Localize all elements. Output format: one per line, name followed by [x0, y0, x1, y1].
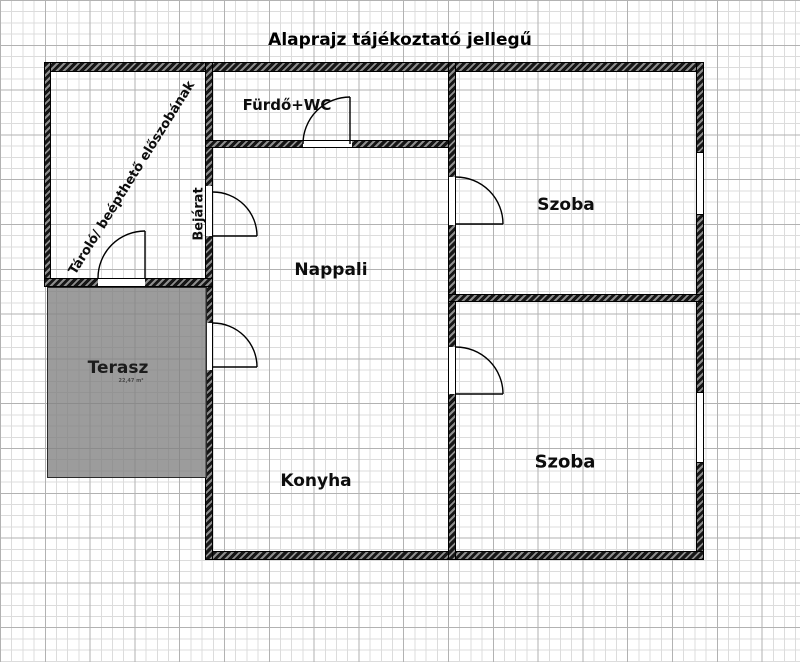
- wall-top: [44, 62, 704, 72]
- wall-middle-vertical: [448, 62, 456, 560]
- floor-plan-canvas: Alaprajz tájékoztató jellegű: [0, 0, 800, 662]
- wall-right: [696, 62, 704, 560]
- plan-title: Alaprajz tájékoztató jellegű: [268, 30, 532, 50]
- window-room-bottom-icon: [696, 392, 704, 463]
- door-arc-room-top-icon: [456, 177, 503, 224]
- terrace-area-value: 22,47 m²: [119, 378, 144, 384]
- door-opening-storage: [98, 278, 145, 287]
- door-opening-bathroom: [303, 140, 352, 148]
- door-opening-room-top: [448, 177, 456, 225]
- door-arc-storage-icon: [98, 231, 145, 278]
- door-arc-entrance-icon: [213, 192, 257, 236]
- room-label-room-top: Szoba: [537, 195, 594, 215]
- room-label-room-bottom: Szoba: [535, 452, 596, 473]
- room-label-kitchen: Konyha: [280, 471, 351, 491]
- wall-storage-left: [44, 62, 51, 287]
- room-label-storage: Tároló/ beépthető előszobának: [66, 78, 198, 277]
- door-opening-room-bottom: [448, 347, 456, 394]
- door-arc-room-bottom-icon: [456, 347, 503, 394]
- room-label-bathroom: Fürdő+WC: [243, 96, 332, 114]
- room-label-entrance: Bejárat: [192, 187, 207, 240]
- room-label-living: Nappali: [294, 260, 367, 280]
- door-arc-terrace-icon: [213, 323, 257, 367]
- window-room-top-icon: [696, 152, 704, 215]
- wall-rooms-divider: [448, 294, 704, 302]
- room-label-terrace: Terasz: [88, 358, 149, 378]
